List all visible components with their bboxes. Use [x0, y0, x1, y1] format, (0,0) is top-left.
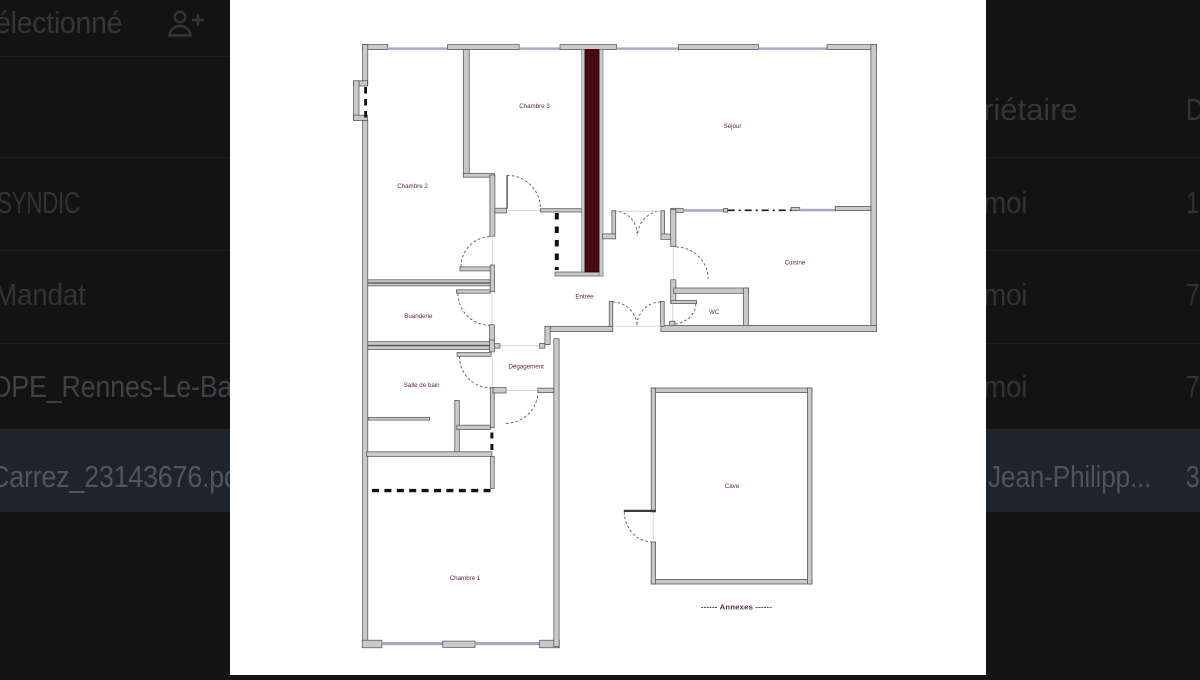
svg-text:Buanderie: Buanderie	[404, 313, 433, 320]
svg-text:Chambre 2: Chambre 2	[397, 183, 428, 190]
svg-text:Chambre 3: Chambre 3	[519, 103, 550, 110]
svg-text:Salle de bain: Salle de bain	[404, 382, 440, 389]
svg-text:Dégagement: Dégagement	[508, 364, 544, 371]
svg-text:WC: WC	[709, 309, 720, 316]
svg-text:Entrée: Entrée	[575, 293, 594, 300]
svg-text:Chambre 1: Chambre 1	[450, 575, 481, 582]
svg-text:------ Annexes ------: ------ Annexes ------	[701, 603, 772, 612]
svg-text:Séjour: Séjour	[724, 123, 742, 130]
svg-text:Cuisine: Cuisine	[785, 260, 806, 267]
svg-text:Cave: Cave	[725, 483, 740, 490]
